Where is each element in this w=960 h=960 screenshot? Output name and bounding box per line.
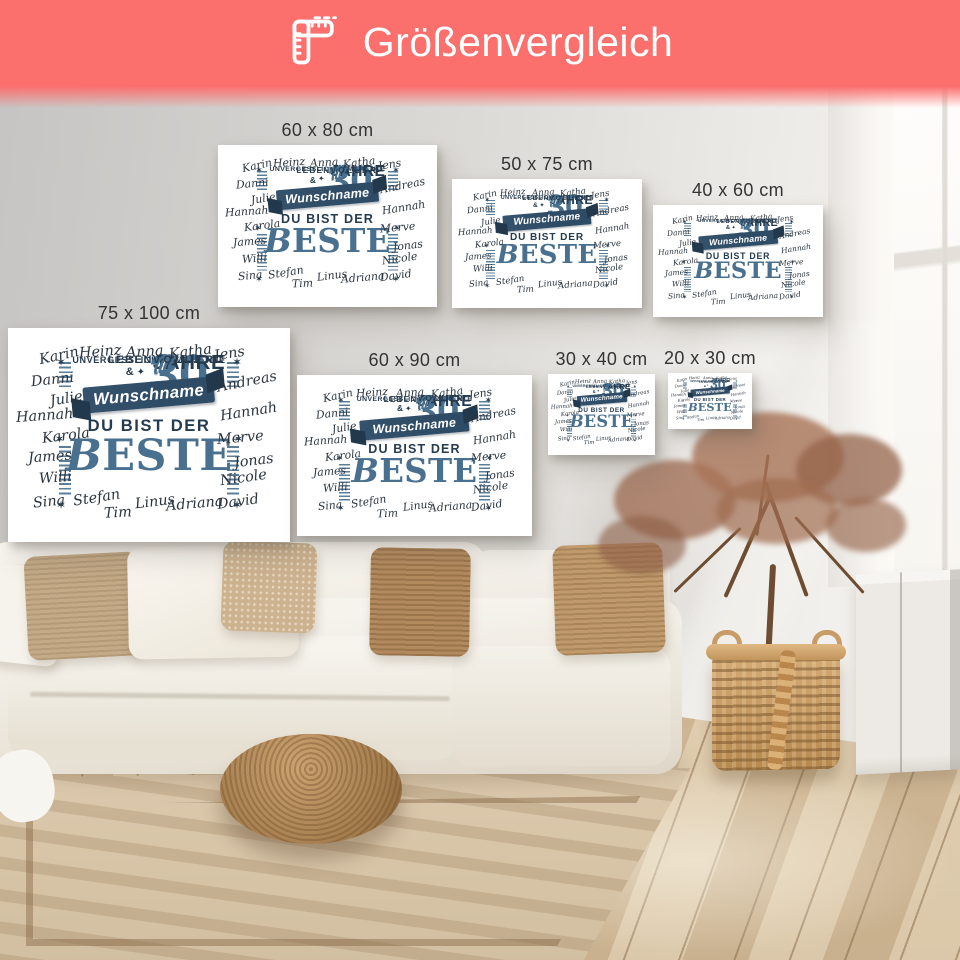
poster-artwork: 30 JAHRE (((( VOLLER LEBEN & UNVERGESSLI… <box>492 194 602 268</box>
poster-name: Merve <box>779 258 804 268</box>
leben-text: LEBEN & <box>699 380 711 388</box>
poster-artwork: 30 JAHRE (((( VOLLER LEBEN & UNVERGESSLI… <box>570 383 632 430</box>
header-banner: Größenvergleich <box>0 0 960 108</box>
poster-name: Willi <box>671 279 689 288</box>
beste-text: BESTE <box>65 436 232 477</box>
poster-name: Sina <box>469 279 489 290</box>
name-ribbon: Wunschname <box>698 230 778 250</box>
poster-name: James <box>465 252 492 263</box>
name-ribbon: Wunschname <box>83 376 216 413</box>
poster-artwork: 30 JAHRE (((( VOLLER LEBEN & UNVERGESSLI… <box>346 394 482 487</box>
size-label-50x75cm: 50 x 75 cm <box>501 154 593 175</box>
size-label-30x40cm: 30 x 40 cm <box>555 349 647 370</box>
poster-name: Hannah <box>780 243 811 255</box>
poster-name: Willi <box>39 470 73 487</box>
poster-name: Heinz <box>499 188 525 198</box>
wunschname-text: Wunschname <box>709 232 768 247</box>
poster-60x90cm: ✶ ✶ ✶ ✶ ✶ ✶ 30 JAHRE (((( VOLLER LEBEN &… <box>297 375 532 536</box>
beste-text: BESTE <box>570 414 633 429</box>
name-ribbon: Wunschname <box>502 208 591 231</box>
poster-name: Adriana <box>715 417 730 422</box>
wunschname-text: Wunschname <box>695 387 724 395</box>
poster-name: Hannah <box>473 430 517 447</box>
wunschname-text: Wunschname <box>372 415 457 436</box>
ruler-icon <box>287 14 343 70</box>
poster-name: Jens <box>590 189 610 200</box>
poster-name: Hannah <box>382 200 427 218</box>
beste-text: BESTE <box>694 261 782 282</box>
poster-name: Hannah <box>731 392 746 398</box>
poster-name: Tim <box>104 505 133 521</box>
poster-name: Sina <box>33 493 67 511</box>
poster-name: Heinz <box>78 344 121 361</box>
poster-name: Tim <box>711 298 726 306</box>
poster-name: Nicole <box>594 263 623 276</box>
size-label-20x30cm: 20 x 30 cm <box>664 348 756 369</box>
poster-name: Nicole <box>219 468 268 489</box>
poster-name: Adriana <box>748 292 779 302</box>
poster-name: David <box>592 278 618 290</box>
poster-name: Merve <box>730 399 742 404</box>
poster-50x75cm: ✶ ✶ ✶ ✶ ✶ ✶ 30 JAHRE (((( VOLLER LEBEN &… <box>452 179 642 308</box>
poster-name: Adriana <box>428 500 472 515</box>
poster-artwork: 30 JAHRE (((( VOLLER LEBEN & UNVERGESSLI… <box>264 164 391 257</box>
wunschname-text: Wunschname <box>285 185 370 206</box>
poster-name: Hannah <box>628 401 650 410</box>
name-ribbon: Wunschname <box>690 386 729 396</box>
wunschname-text: Wunschname <box>580 394 623 405</box>
poster-name: Willi <box>322 482 347 495</box>
poster-20x30cm: ✶ ✶ ✶ ✶ ✶ ✶ 30 JAHRE (((( VOLLER LEBEN &… <box>668 373 752 429</box>
beste-text: BESTE <box>688 402 732 413</box>
poster-75x100cm: ✶ ✶ ✶ ✶ ✶ ✶ 30 JAHRE (((( VOLLER LEBEN &… <box>8 328 290 542</box>
size-label-40x60cm: 40 x 60 cm <box>692 180 784 201</box>
poster-name: Anna <box>724 213 744 222</box>
beste-text: BESTE <box>264 226 391 257</box>
poster-30x40cm: ✶ ✶ ✶ ✶ ✶ ✶ 30 JAHRE (((( VOLLER LEBEN &… <box>548 374 655 455</box>
poster-name: Merve <box>470 451 506 465</box>
poster-name: James <box>674 405 686 410</box>
poster-name: Tim <box>377 508 398 520</box>
poster-name: Danni <box>666 227 689 237</box>
room-scene: 60 x 80 cm ✶ ✶ ✶ ✶ ✶ ✶ 30 JAHRE (((( VOL… <box>0 0 960 960</box>
poster-name: Willi <box>473 265 493 275</box>
poster-name: Tim <box>584 441 595 447</box>
name-ribbon: Wunschname <box>276 181 379 210</box>
poster-name: Anna <box>310 157 339 169</box>
poster-name: James <box>665 268 688 277</box>
poster-name: Adriana <box>340 271 384 286</box>
poster-name: Hannah <box>224 205 268 219</box>
poster-name: Merve <box>380 221 416 235</box>
poster-60x80cm: ✶ ✶ ✶ ✶ ✶ ✶ 30 JAHRE (((( VOLLER LEBEN &… <box>218 145 437 307</box>
poster-name: Nicole <box>780 278 805 289</box>
poster-name: Heinz <box>695 213 718 222</box>
poster-name: Adriana <box>165 495 223 514</box>
poster-name: Willi <box>677 410 686 414</box>
banner-content: Größenvergleich <box>287 14 674 70</box>
poster-name: Adriana <box>558 279 593 291</box>
name-ribbon: Wunschname <box>576 392 626 406</box>
poster-name: James <box>313 466 347 479</box>
poster-name: Tim <box>292 279 314 291</box>
beste-text: BESTE <box>352 456 478 487</box>
poster-name: Merve <box>627 412 645 419</box>
page-title: Größenvergleich <box>363 19 674 66</box>
poster-name: Merve <box>592 240 621 251</box>
name-ribbon: Wunschname <box>359 411 469 440</box>
wunschname-text: Wunschname <box>93 380 205 410</box>
poster-name: David <box>730 416 741 421</box>
poster-name: James <box>27 448 72 465</box>
poster-name: David <box>778 291 801 302</box>
poster-name: Sina <box>318 499 343 512</box>
poster-40x60cm: ✶ ✶ ✶ ✶ ✶ ✶ 30 JAHRE (((( VOLLER LEBEN &… <box>653 205 823 317</box>
poster-name: Hannah <box>304 435 348 449</box>
beste-text: BESTE <box>497 243 598 268</box>
poster-name: David <box>470 498 503 513</box>
size-label-60x90cm: 60 x 90 cm <box>368 350 460 371</box>
poster-artwork: 30 JAHRE (((( VOLLER LEBEN & UNVERGESSLI… <box>689 218 788 283</box>
poster-name: Anna <box>126 344 164 360</box>
poster-name: Heinz <box>355 387 388 400</box>
poster-name: Andreas <box>730 384 746 391</box>
poster-name: Tim <box>696 419 703 423</box>
poster-name: Nicole <box>628 427 646 435</box>
poster-name: Nicole <box>473 480 510 496</box>
poster-name: Willi <box>242 253 268 266</box>
poster-name: Hannah <box>658 247 689 257</box>
size-label-75x100cm: 75 x 100 cm <box>98 303 200 324</box>
poster-name: Anna <box>532 189 555 199</box>
poster-name: Tim <box>516 286 533 296</box>
poster-wall-group: 60 x 80 cm ✶ ✶ ✶ ✶ ✶ ✶ 30 JAHRE (((( VOL… <box>0 0 960 775</box>
poster-name: Nicole <box>382 251 419 267</box>
poster-name: Nicole <box>731 410 744 415</box>
wunschname-text: Wunschname <box>513 211 581 228</box>
poster-name: Hannah <box>16 407 74 425</box>
poster-name: Anna <box>395 387 424 399</box>
poster-name: Hannah <box>594 223 630 237</box>
poster-name: David <box>216 492 260 512</box>
size-label-60x80cm: 60 x 80 cm <box>281 120 373 141</box>
poster-artwork: 30 JAHRE (((( VOLLER LEBEN & UNVERGESSLI… <box>686 379 735 412</box>
poster-name: Merve <box>216 429 264 447</box>
poster-name: Sina <box>675 416 684 421</box>
poster-artwork: 30 JAHRE (((( VOLLER LEBEN & UNVERGESSLI… <box>67 353 231 477</box>
poster-name: Heinz <box>272 157 305 170</box>
poster-name: Hannah <box>457 227 492 238</box>
